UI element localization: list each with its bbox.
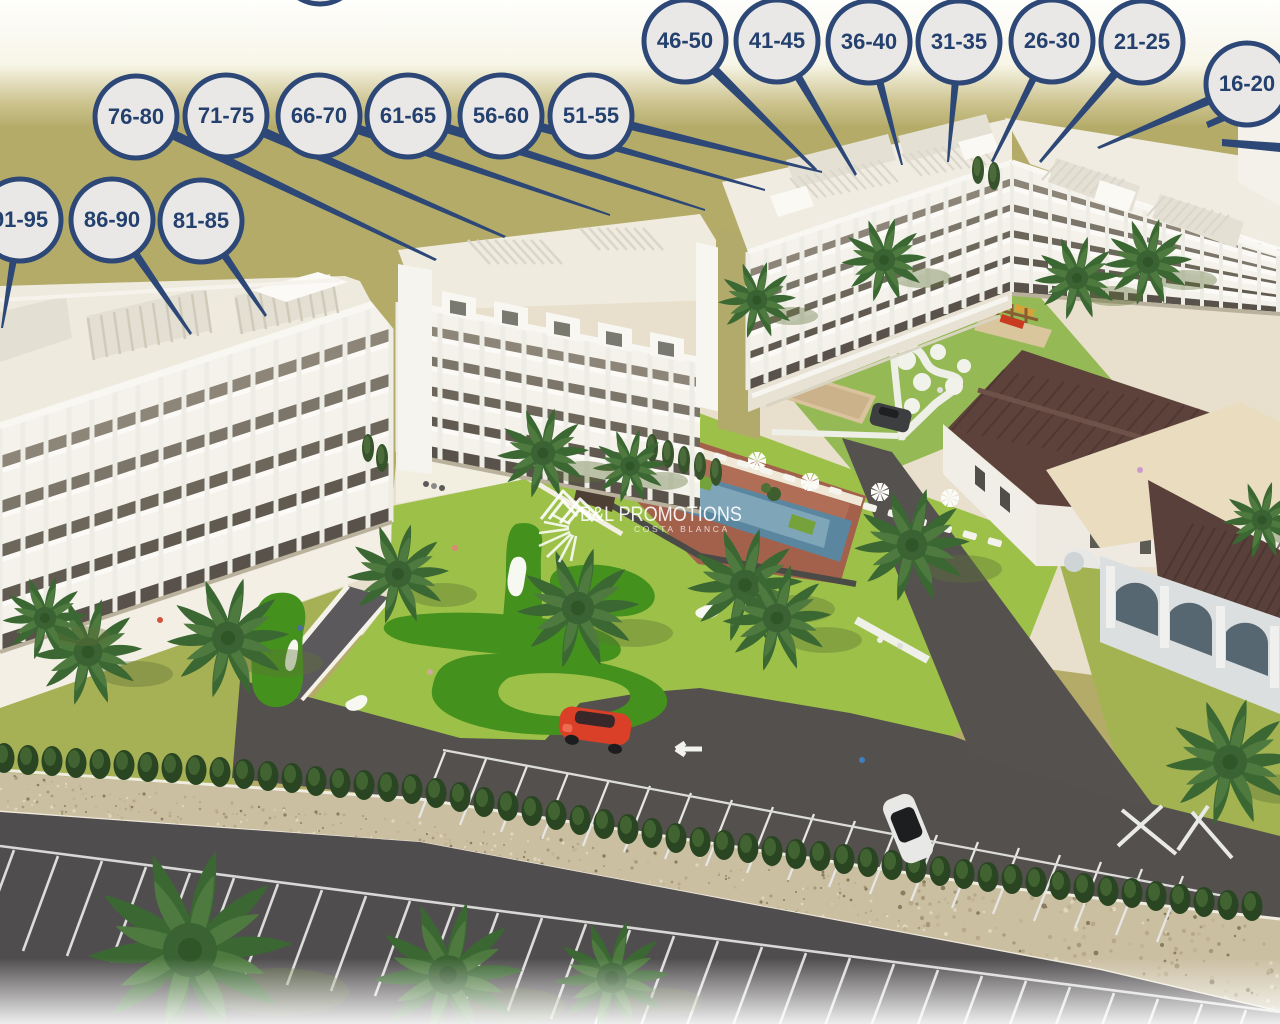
svg-text:86-90: 86-90 (84, 207, 140, 232)
svg-text:71-75: 71-75 (198, 103, 254, 128)
svg-text:91-95: 91-95 (0, 207, 48, 232)
svg-text:26-30: 26-30 (1024, 28, 1080, 53)
svg-text:21-25: 21-25 (1114, 29, 1170, 54)
svg-text:16-20: 16-20 (1219, 71, 1275, 96)
svg-text:46-50: 46-50 (657, 28, 713, 53)
svg-text:61-65: 61-65 (380, 103, 436, 128)
svg-text:66-70: 66-70 (291, 103, 347, 128)
svg-text:41-45: 41-45 (749, 28, 805, 53)
svg-text:56-60: 56-60 (473, 103, 529, 128)
svg-text:36-40: 36-40 (841, 29, 897, 54)
svg-text:B&L PROMOTIONS: B&L PROMOTIONS (580, 503, 742, 526)
svg-text:31-35: 31-35 (931, 29, 987, 54)
svg-text:76-80: 76-80 (108, 104, 164, 129)
svg-text:51-55: 51-55 (563, 103, 619, 128)
svg-text:COSTA BLANCA: COSTA BLANCA (634, 524, 730, 534)
svg-text:81-85: 81-85 (173, 208, 229, 233)
